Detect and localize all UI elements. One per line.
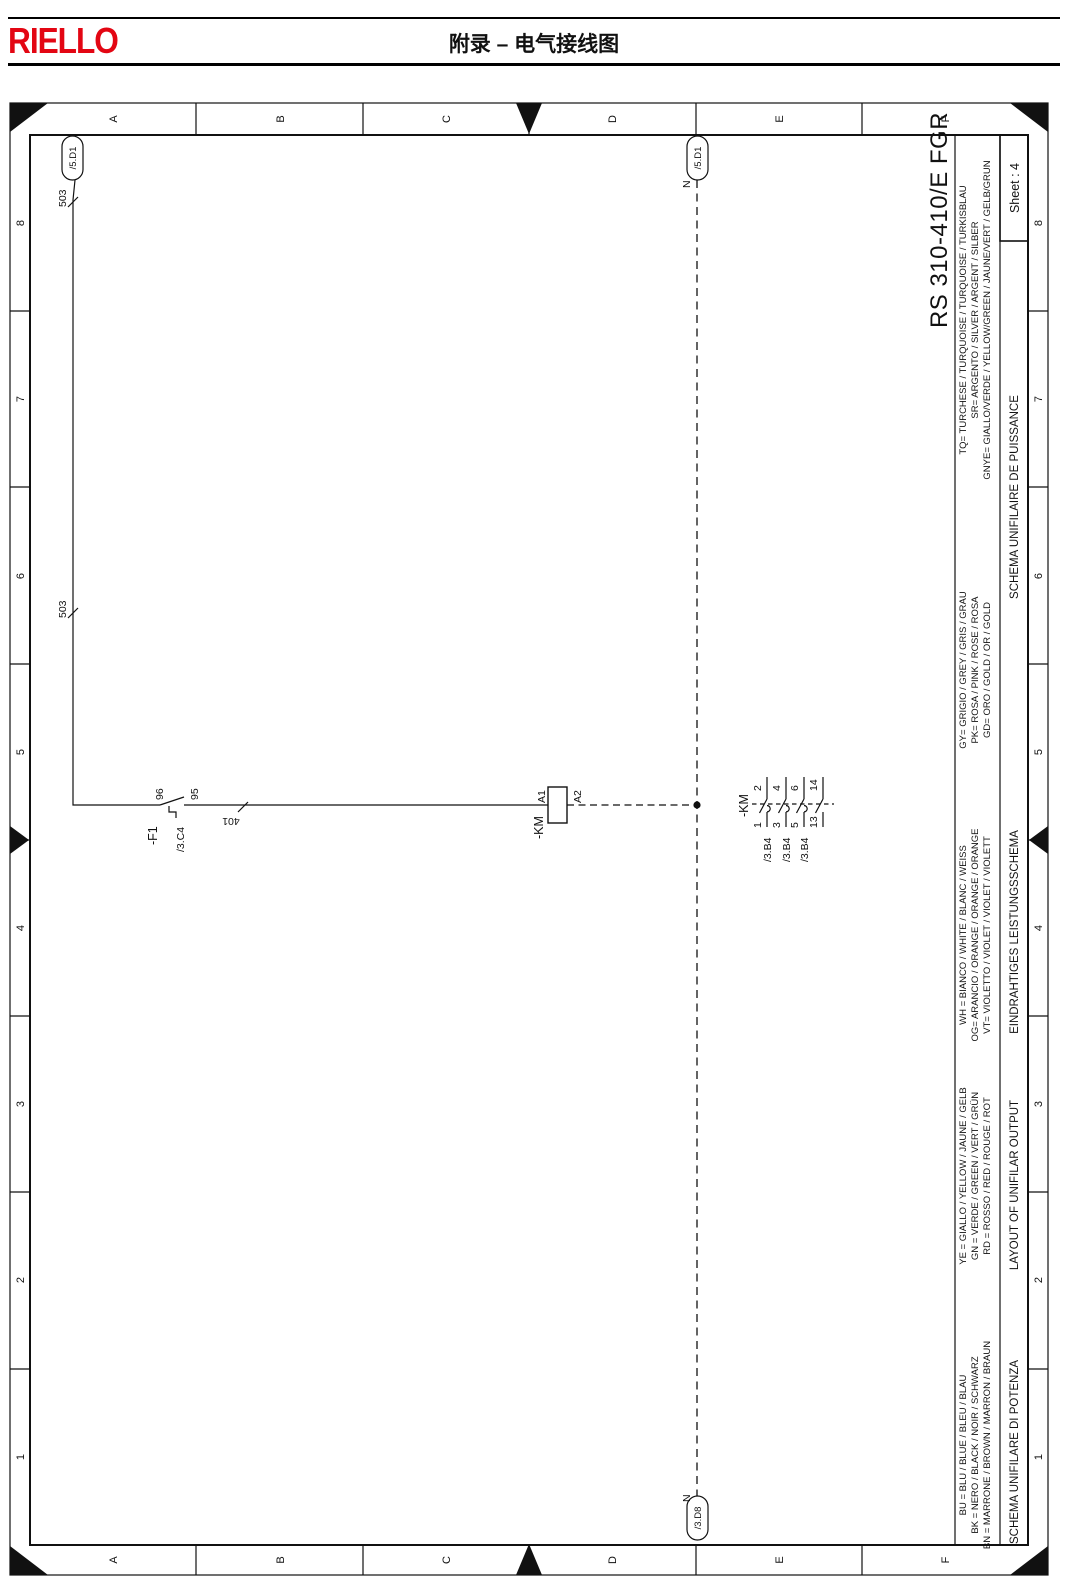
legend-line: GN = VERDE / GREEN / VERT / GRÜN xyxy=(970,1092,981,1260)
schematic: /5.D1 503 503 96 95 -F1 /3.C4 401 xyxy=(57,136,834,1540)
corner-mark-top-left xyxy=(10,103,48,132)
column-label: A xyxy=(108,1556,120,1564)
row-label: 2 xyxy=(1033,1277,1045,1283)
km-contact-set: -KM 2 1 /3.B4 4 3 /3.B4 xyxy=(737,777,834,862)
row-label: 1 xyxy=(1033,1454,1045,1460)
legend-line: GD= ORO / GOLD / OR / GOLD xyxy=(982,602,993,738)
wiring-diagram-sheet: A B C D E F A B C D E F 8 7 6 5 4 3 2 1 … xyxy=(0,0,1068,1577)
cross-reference-label: /3.C4 xyxy=(175,827,187,852)
neutral-line: /5.D1 N N /3.D8 xyxy=(681,136,708,1540)
cross-reference-label: /3.B4 xyxy=(781,837,793,862)
corner-mark-top-right xyxy=(1010,103,1048,132)
wire-tick xyxy=(238,802,248,812)
legend-line: VT= VIOLETTO / VIOLET / VIOLET / VIOLETT xyxy=(982,836,993,1034)
terminal-label: A1 xyxy=(536,790,548,803)
terminal-label: 4 xyxy=(771,785,783,791)
row-label: 1 xyxy=(15,1454,27,1460)
drawing-code: RS 310-410/E FGR xyxy=(926,112,953,328)
centre-mark-left xyxy=(10,826,29,854)
terminal-label: 95 xyxy=(189,788,201,800)
column-label: E xyxy=(774,1556,786,1563)
diagram-title-fr: SCHEMA UNIFILAIRE DE PUISSANCE xyxy=(1009,395,1021,599)
terminal-label: 96 xyxy=(154,788,166,800)
legend-line: WH = BIANCO / WHITE / BLANC / WEISS xyxy=(958,845,969,1025)
row-label: 6 xyxy=(1033,573,1045,579)
row-label: 5 xyxy=(1033,749,1045,755)
terminal-label: A2 xyxy=(572,790,584,803)
row-label: 5 xyxy=(15,749,27,755)
component-tag: -KM xyxy=(737,794,751,817)
row-label: 7 xyxy=(1033,396,1045,402)
terminal-label: 2 xyxy=(752,785,764,791)
frame-border xyxy=(10,103,1048,1575)
sheet-number: Sheet : 4 xyxy=(1008,163,1022,213)
legend-line: PK= ROSA / PINK / ROSE / ROSA xyxy=(970,596,981,744)
page: RIELLO 附录 – 电气接线图 xyxy=(0,0,1068,1577)
column-label: E xyxy=(774,115,786,122)
row-label: 2 xyxy=(15,1277,27,1283)
frame-column-labels: A B C D E F A B C D E F xyxy=(108,115,952,1564)
diagram-title-it: SCHEMA UNIFILARE DI POTENZA xyxy=(1009,1360,1021,1544)
column-label: A xyxy=(108,115,120,123)
column-label: F xyxy=(940,1556,952,1563)
terminal-label: 13 xyxy=(808,816,820,828)
column-label: C xyxy=(441,115,453,123)
centre-mark-bottom xyxy=(516,1544,542,1575)
component-tag: -KM xyxy=(532,816,546,839)
cross-reference-label: /3.B4 xyxy=(762,837,774,862)
terminal-label: 14 xyxy=(808,779,820,791)
centre-mark-top xyxy=(516,103,542,134)
row-label: 4 xyxy=(1033,925,1045,931)
legend-line: BN = MARRONE / BROWN / MARRON / BRAUN xyxy=(982,1341,993,1549)
legend-line: TQ= TURCHESE / TURQUOISE / TURQUOISE / T… xyxy=(958,185,969,454)
legend-line: GNYE= GIALLO/VERDE / YELLOW/GREEN / JAUN… xyxy=(982,160,993,479)
terminal-label: 5 xyxy=(789,822,801,828)
frame-row-labels: 8 7 6 5 4 3 2 1 8 7 6 5 4 3 2 1 xyxy=(15,220,1045,1460)
legend-line: RD = ROSSO / RED / ROUGE / ROT xyxy=(982,1097,993,1255)
diagram-title-en: LAYOUT OF UNIFILAR OUTPUT xyxy=(1009,1100,1021,1270)
component-tag: -F1 xyxy=(146,826,160,845)
wire-number: N xyxy=(681,180,693,188)
cross-reference-label: /3.D8 xyxy=(693,1507,704,1530)
row-label: 3 xyxy=(1033,1101,1045,1107)
km-aux-contact: 14 13 xyxy=(808,777,823,828)
f1-overload-contact: 96 95 -F1 /3.C4 xyxy=(146,788,548,852)
centre-mark-right xyxy=(1029,826,1048,854)
legend-line: OG= ARANCIO / ORANGE / ORANGE / ORANGE xyxy=(970,829,981,1042)
legend-line: GY= GRIGIO / GREY / GRIS / GRAU xyxy=(958,591,969,749)
km-coil: A1 A2 -KM xyxy=(532,787,584,839)
column-label: D xyxy=(607,115,619,123)
corner-mark-bottom-left xyxy=(10,1546,48,1575)
row-label: 7 xyxy=(15,396,27,402)
wire-number: 503 xyxy=(57,600,69,618)
column-label: B xyxy=(275,115,287,122)
row-label: 3 xyxy=(15,1101,27,1107)
cross-reference-label: /3.B4 xyxy=(799,837,811,862)
legend-line: YE = GIALLO / YELLOW / JAUNE / GELB xyxy=(958,1087,969,1265)
row-label: 6 xyxy=(15,573,27,579)
terminal-label: 3 xyxy=(771,822,783,828)
wire-number: 503 xyxy=(57,189,69,207)
legend-line: BK = NERO / BLACK / NOIR / SCHWARZ xyxy=(970,1356,981,1533)
legend-line: SR= ARGENTO / SILVER / ARGENT / SILBER xyxy=(970,221,981,418)
column-label: B xyxy=(275,1556,287,1563)
wire-503 xyxy=(73,180,160,805)
column-label: C xyxy=(441,1556,453,1564)
cross-reference-label: /5.D1 xyxy=(68,147,79,170)
legend-line: BU = BLU / BLUE / BLEU / BLAU xyxy=(958,1375,969,1516)
terminal-label: 1 xyxy=(752,822,764,828)
row-label: 8 xyxy=(15,220,27,226)
terminal-label: 6 xyxy=(789,785,801,791)
corner-mark-bottom-right xyxy=(1010,1546,1048,1575)
wire-number: 401 xyxy=(222,815,240,827)
row-label: 4 xyxy=(15,925,27,931)
row-label: 8 xyxy=(1033,220,1045,226)
wire-color-legend: TQ= TURCHESE / TURQUOISE / TURQUOISE / T… xyxy=(958,160,993,1549)
cross-reference-label: /5.D1 xyxy=(693,147,704,170)
column-label: D xyxy=(607,1556,619,1564)
diagram-title-de: EINDRAHTIGES LEISTUNGSSCHEMA xyxy=(1009,830,1021,1034)
